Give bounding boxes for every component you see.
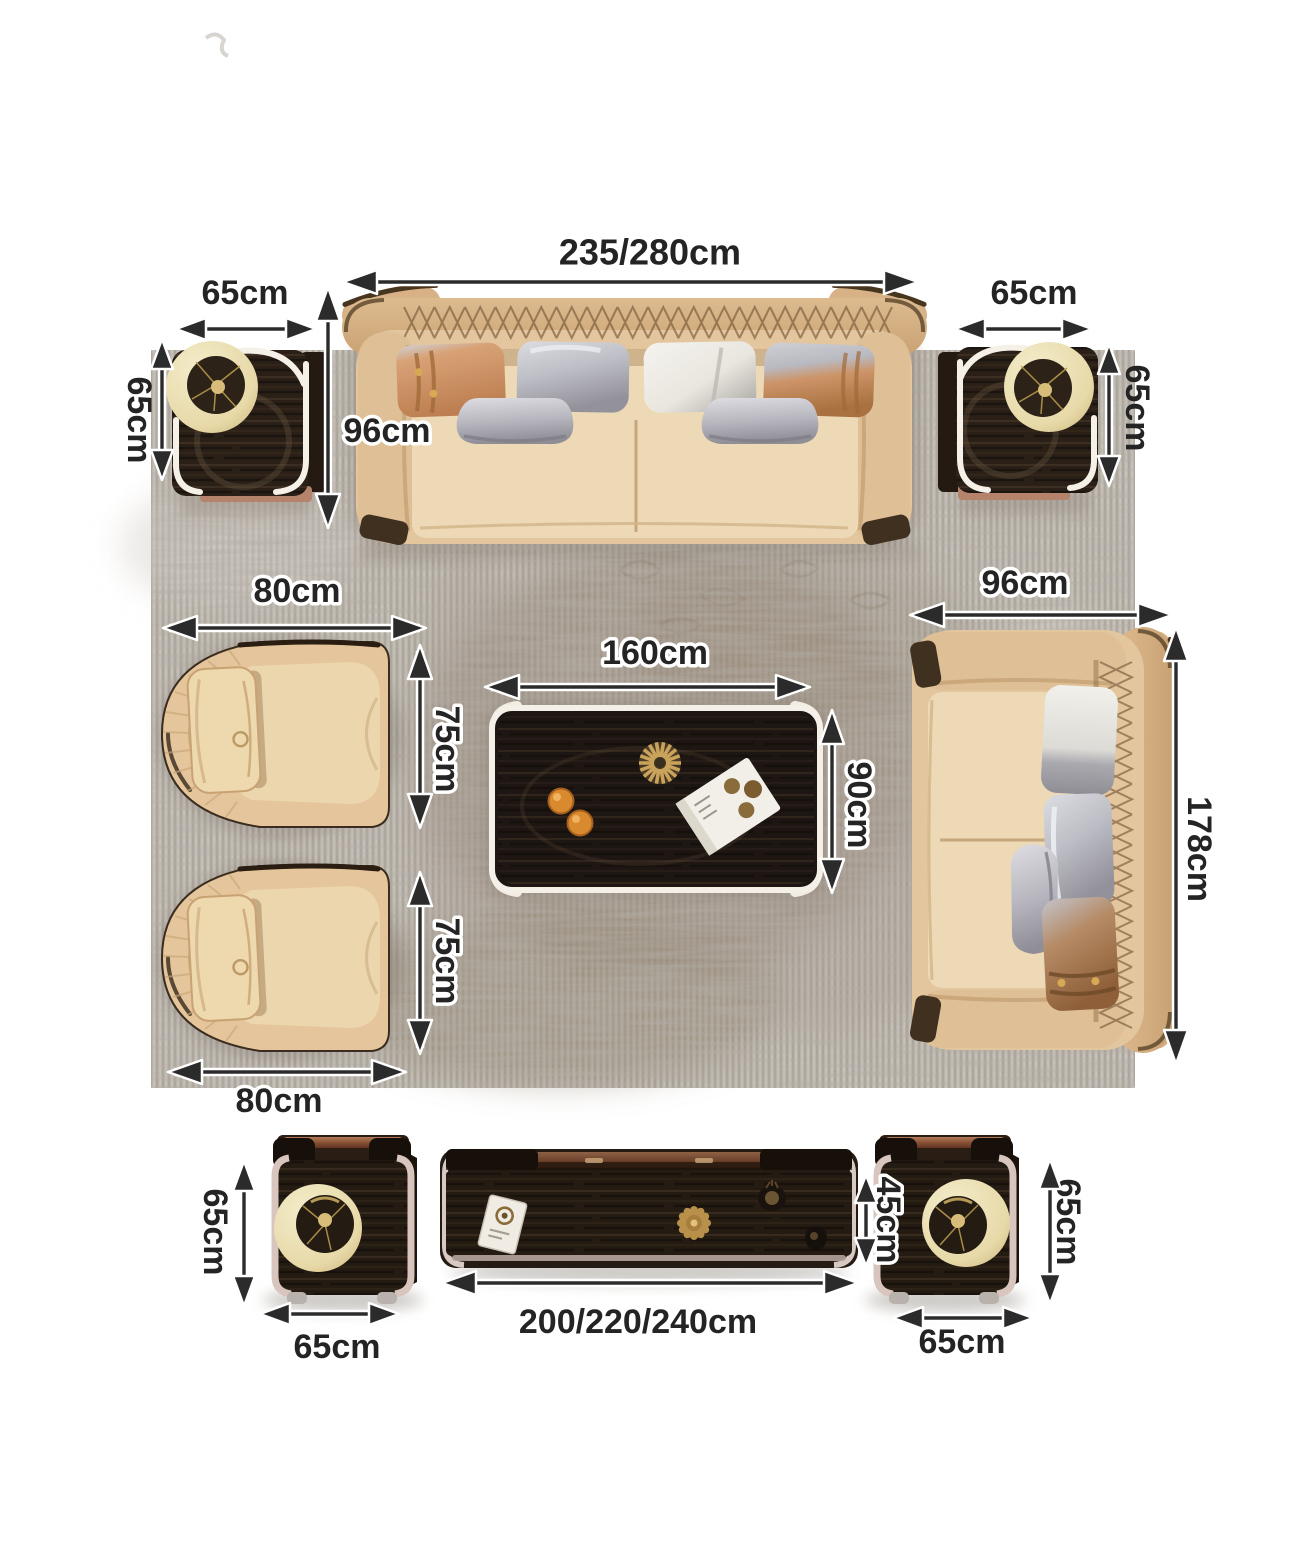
svg-text:65cm: 65cm xyxy=(991,274,1078,312)
svg-text:90cm: 90cm xyxy=(840,762,878,849)
svg-text:96cm: 96cm xyxy=(982,564,1069,602)
svg-text:96cm: 96cm xyxy=(344,412,431,450)
svg-text:65cm: 65cm xyxy=(196,1189,234,1276)
svg-text:45cm: 45cm xyxy=(869,1177,907,1264)
svg-text:160cm: 160cm xyxy=(602,634,708,672)
svg-text:65cm: 65cm xyxy=(202,274,289,312)
svg-text:178cm: 178cm xyxy=(1180,796,1218,902)
svg-text:200/220/240cm: 200/220/240cm xyxy=(519,1303,757,1341)
svg-text:80cm: 80cm xyxy=(254,572,341,610)
svg-text:65cm: 65cm xyxy=(1049,1179,1087,1266)
svg-text:65cm: 65cm xyxy=(919,1323,1006,1361)
svg-text:80cm: 80cm xyxy=(236,1082,323,1120)
svg-text:65cm: 65cm xyxy=(1118,365,1156,452)
svg-text:235/280cm: 235/280cm xyxy=(559,232,741,273)
svg-text:75cm: 75cm xyxy=(428,918,466,1005)
svg-text:75cm: 75cm xyxy=(428,706,466,793)
svg-text:65cm: 65cm xyxy=(294,1328,381,1366)
